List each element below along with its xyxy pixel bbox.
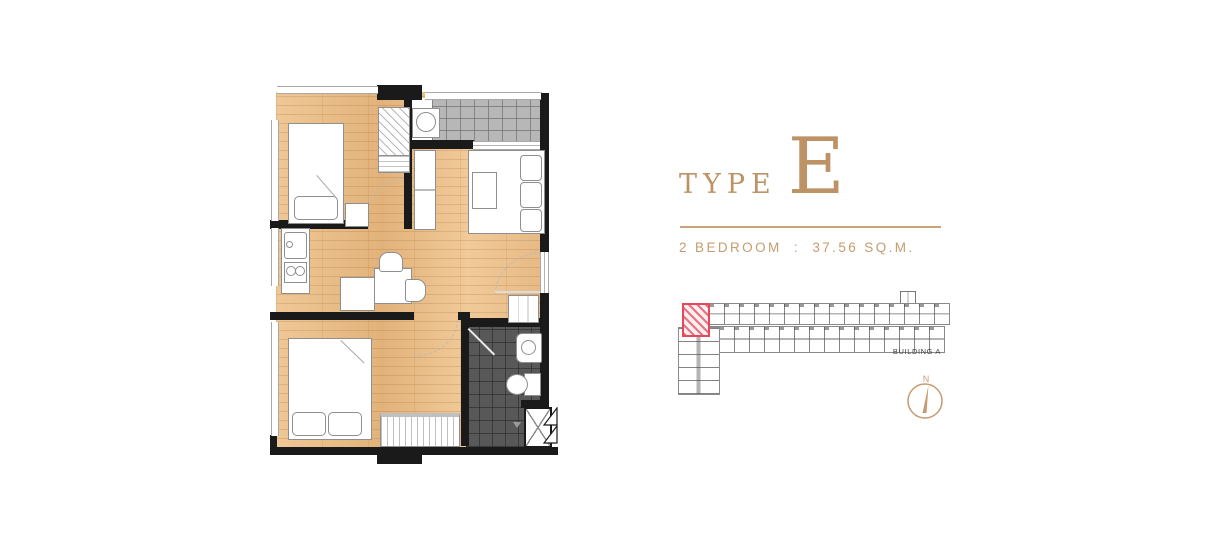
bedroom1-pillow: [294, 196, 338, 220]
bedroom2-cushion-1: [520, 155, 542, 181]
unit-spec: 2 BEDROOM : 37.56 SQ.M.: [679, 240, 949, 255]
balcony-sliding-door: [473, 141, 540, 150]
balcony-railing: [425, 92, 541, 100]
entry-door-icon: [543, 407, 558, 444]
kitchen-faucet: [286, 241, 293, 248]
toilet-bowl: [506, 374, 528, 395]
balcony-floor: [432, 94, 540, 143]
type-title: TYPE E: [679, 128, 949, 206]
bathroom-sink-basin: [521, 340, 536, 355]
entry-bench: [508, 295, 539, 323]
bedroom1-shelf-cabinet: [378, 155, 410, 173]
type-label: TYPE: [679, 169, 777, 200]
wall-bathroom-west: [461, 318, 469, 446]
bedroom2-door-leaf: [495, 291, 543, 293]
kitchen-island: [340, 277, 375, 311]
master-pillow-1: [292, 412, 326, 436]
washing-machine-drum: [416, 112, 436, 132]
window-bedroom1-north: [277, 86, 378, 94]
bedroom2-cushion-2: [520, 182, 542, 208]
window-master-west: [271, 322, 279, 436]
window-kitchen-west: [271, 228, 279, 286]
dining-chair-1: [379, 252, 403, 272]
type-letter: E: [788, 128, 845, 206]
unit-row-north: [708, 303, 950, 325]
floor-drain-mark: [513, 422, 521, 428]
master-wardrobe: [380, 413, 460, 447]
title-divider: [680, 226, 941, 228]
compass-north-label: N: [923, 374, 930, 384]
wall-balcony-south: [412, 140, 474, 149]
master-pillow-2: [328, 412, 362, 436]
stove-burner-2: [295, 266, 305, 276]
bedroom2-cushion-3: [520, 209, 542, 232]
floor-plan-page: TYPE E 2 BEDROOM : 37.56 SQ.M. BUILDING …: [0, 0, 1220, 549]
wall-bottom-protrusion: [377, 447, 422, 464]
bedroom2-closet: [414, 150, 436, 230]
building-label: BUILDING A: [838, 347, 941, 356]
wall-top-block: [377, 85, 422, 100]
bedroom1-nightstand: [345, 203, 369, 227]
dining-chair-2: [405, 279, 426, 302]
bedroom1-wardrobe: [378, 107, 410, 157]
window-bedroom1-west: [271, 120, 279, 221]
wall-left-corner: [270, 435, 277, 455]
north-compass-icon: N: [901, 372, 957, 422]
wall-master-north: [270, 312, 414, 320]
highlighted-unit: [682, 303, 710, 337]
bedroom2-side-table: [472, 172, 497, 209]
unit-floor-plan: [270, 85, 558, 464]
building-wing-west: [678, 327, 720, 395]
opening-bedroom2-east: [540, 252, 549, 293]
